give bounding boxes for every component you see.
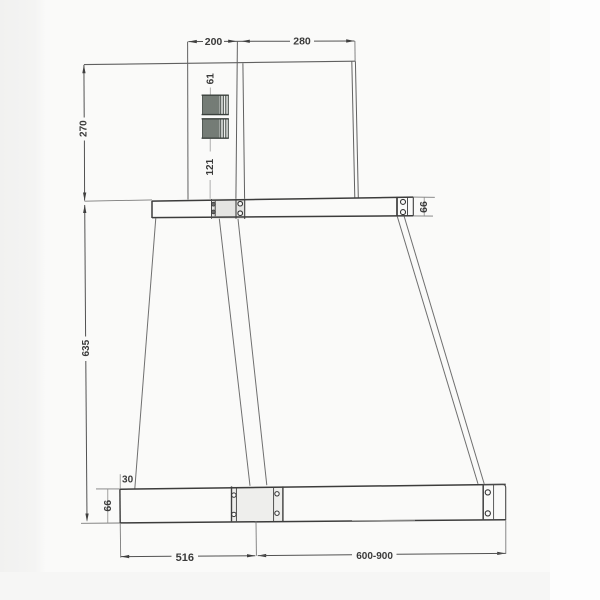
svg-text:66: 66 [418,201,430,213]
svg-text:280: 280 [293,36,311,48]
svg-text:30: 30 [122,475,134,486]
svg-text:270: 270 [78,120,89,137]
svg-text:600-900: 600-900 [356,551,393,562]
svg-text:61: 61 [205,73,216,85]
svg-text:635: 635 [81,339,92,356]
svg-text:200: 200 [205,36,223,48]
svg-text:66: 66 [102,500,114,512]
svg-text:516: 516 [176,552,194,564]
svg-text:121: 121 [205,158,216,175]
